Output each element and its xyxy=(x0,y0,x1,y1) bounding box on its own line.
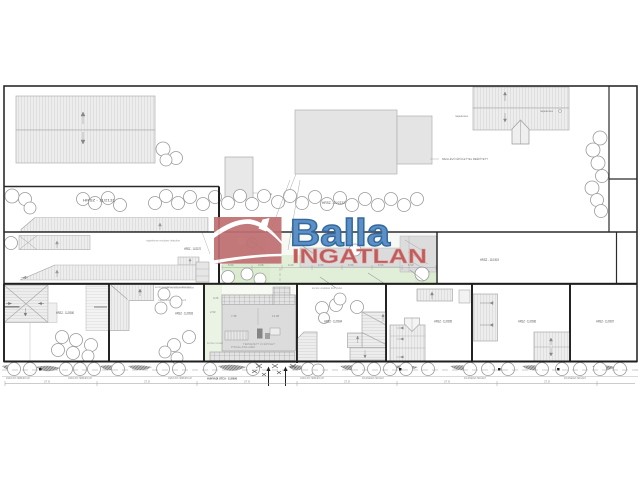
svg-text:ASZFALTOS TÉRBURKOLAT: ASZFALTOS TÉRBURKOLAT xyxy=(68,375,92,380)
svg-text:HRSZ - 11/2132: HRSZ - 11/2132 xyxy=(322,201,345,205)
svg-text:HRSZ - 11/2083: HRSZ - 11/2083 xyxy=(175,312,193,316)
svg-text:27.8: 27.8 xyxy=(344,380,350,384)
svg-text:7.38: 7.38 xyxy=(231,314,237,318)
svg-text:2.53: 2.53 xyxy=(210,310,216,314)
svg-text:ASZFALTOS TÉRBURKOLAT: ASZFALTOS TÉRBURKOLAT xyxy=(300,375,324,380)
svg-text:27.8: 27.8 xyxy=(544,380,550,384)
svg-text:MEGLÉVŐ ÉPÜLETTEL BEÉPÍTETT: MEGLÉVŐ ÉPÜLETTEL BEÉPÍTETT xyxy=(442,156,488,161)
svg-text:kerítés vonalában lévő melléké: kerítés vonalában lévő melléképület xyxy=(155,285,191,289)
svg-text:27.8: 27.8 xyxy=(144,380,150,384)
svg-text:ZÖLDSÉGES TERÜLET: ZÖLDSÉGES TERÜLET xyxy=(464,375,486,380)
svg-text:3.25: 3.25 xyxy=(213,296,219,300)
svg-text:13.08: 13.08 xyxy=(272,314,279,318)
svg-text:HRSZ - 11/2072: HRSZ - 11/2072 xyxy=(184,247,201,251)
svg-text:27.8: 27.8 xyxy=(244,380,250,384)
svg-text:ASZFALTOS TÉRBURKOLAT: ASZFALTOS TÉRBURKOLAT xyxy=(6,375,30,380)
svg-text:HUNYADI UTCA - 11/2090: HUNYADI UTCA - 11/2090 xyxy=(207,377,237,381)
svg-text:ZÖLDSÉGES TERÜLET: ZÖLDSÉGES TERÜLET xyxy=(362,375,384,380)
svg-text:HRSZ - 11/1919: HRSZ - 11/1919 xyxy=(480,258,499,262)
svg-text:HRSZ - 11/2086: HRSZ - 11/2086 xyxy=(518,320,536,324)
svg-text:INGATLAN: INGATLAN xyxy=(292,245,427,268)
svg-text:PINCE+FSZ+2EM: PINCE+FSZ+2EM xyxy=(231,345,256,349)
svg-text:ASZFALTOS TÉRBURKOLAT: ASZFALTOS TÉRBURKOLAT xyxy=(168,375,192,380)
svg-text:HRSZ - 11/2085: HRSZ - 11/2085 xyxy=(434,320,452,324)
svg-text:napelemes: napelemes xyxy=(540,109,553,113)
svg-text:HRSZ - 11/2131: HRSZ - 11/2131 xyxy=(83,199,115,203)
svg-text:HRSZ - 11/2084: HRSZ - 11/2084 xyxy=(324,320,342,324)
svg-text:27.8: 27.8 xyxy=(44,380,50,384)
svg-text:27.8: 27.8 xyxy=(444,380,450,384)
svg-text:HRSZ - 11/2087: HRSZ - 11/2087 xyxy=(596,320,614,324)
svg-text:kerítés vonalában lévő épület: kerítés vonalában lévő épület xyxy=(312,286,342,290)
svg-text:napelemes: napelemes xyxy=(455,114,468,118)
svg-text:HRSZ - 11/2080: HRSZ - 11/2080 xyxy=(56,311,74,315)
svg-text:napelemes rendszer telepítve: napelemes rendszer telepítve xyxy=(146,239,181,243)
svg-text:ZÖLDSÉGES TERÜLET: ZÖLDSÉGES TERÜLET xyxy=(564,375,586,380)
svg-text:kerítés vonala: kerítés vonala xyxy=(207,341,223,345)
